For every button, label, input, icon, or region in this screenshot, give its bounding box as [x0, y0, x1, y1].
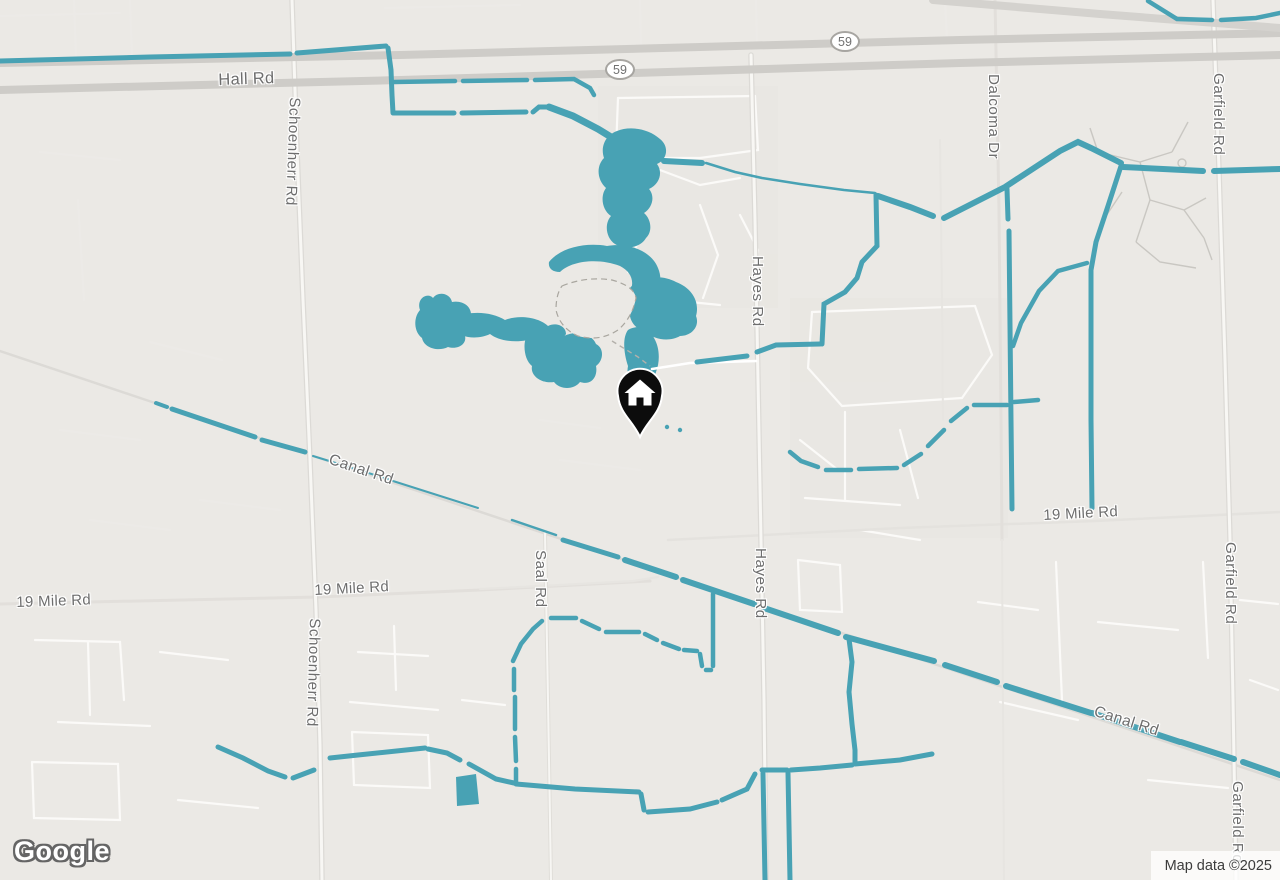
label-garfield-rd-middle: Garfield Rd [1222, 542, 1239, 624]
label-garfield-rd-top: Garfield Rd [1210, 73, 1227, 155]
map-graphics [0, 0, 1280, 880]
highway-ramp [933, 0, 1280, 28]
label-hall-rd: Hall Rd [218, 69, 275, 90]
route-shield-59-east-text: 59 [838, 35, 852, 49]
route-shield-59-east: 59 [830, 31, 860, 52]
route-shield-59-west-text: 59 [613, 63, 627, 77]
label-schoenherr-rd-bottom: Schoenherr Rd [303, 618, 323, 727]
pin-body[interactable] [618, 369, 663, 437]
google-logo[interactable]: Google [14, 836, 110, 867]
park-trails [1090, 122, 1212, 268]
pond [456, 774, 479, 806]
map-canvas[interactable]: Hall Rd Schoenherr Rd Schoenherr Rd Haye… [0, 0, 1280, 880]
label-hayes-rd-top: Hayes Rd [749, 256, 766, 327]
route-shield-59-west: 59 [605, 59, 635, 80]
label-saal-rd: Saal Rd [532, 550, 549, 608]
island [556, 279, 636, 338]
saal-drain [513, 594, 713, 782]
home-pin-marker[interactable] [618, 369, 663, 437]
label-19-mile-rd-left: 19 Mile Rd [16, 591, 91, 611]
label-dalcoma-dr: Dalcoma Dr [985, 74, 1002, 159]
map-attribution: Map data ©2025 [1151, 851, 1280, 880]
label-hayes-rd-bottom: Hayes Rd [752, 548, 769, 619]
